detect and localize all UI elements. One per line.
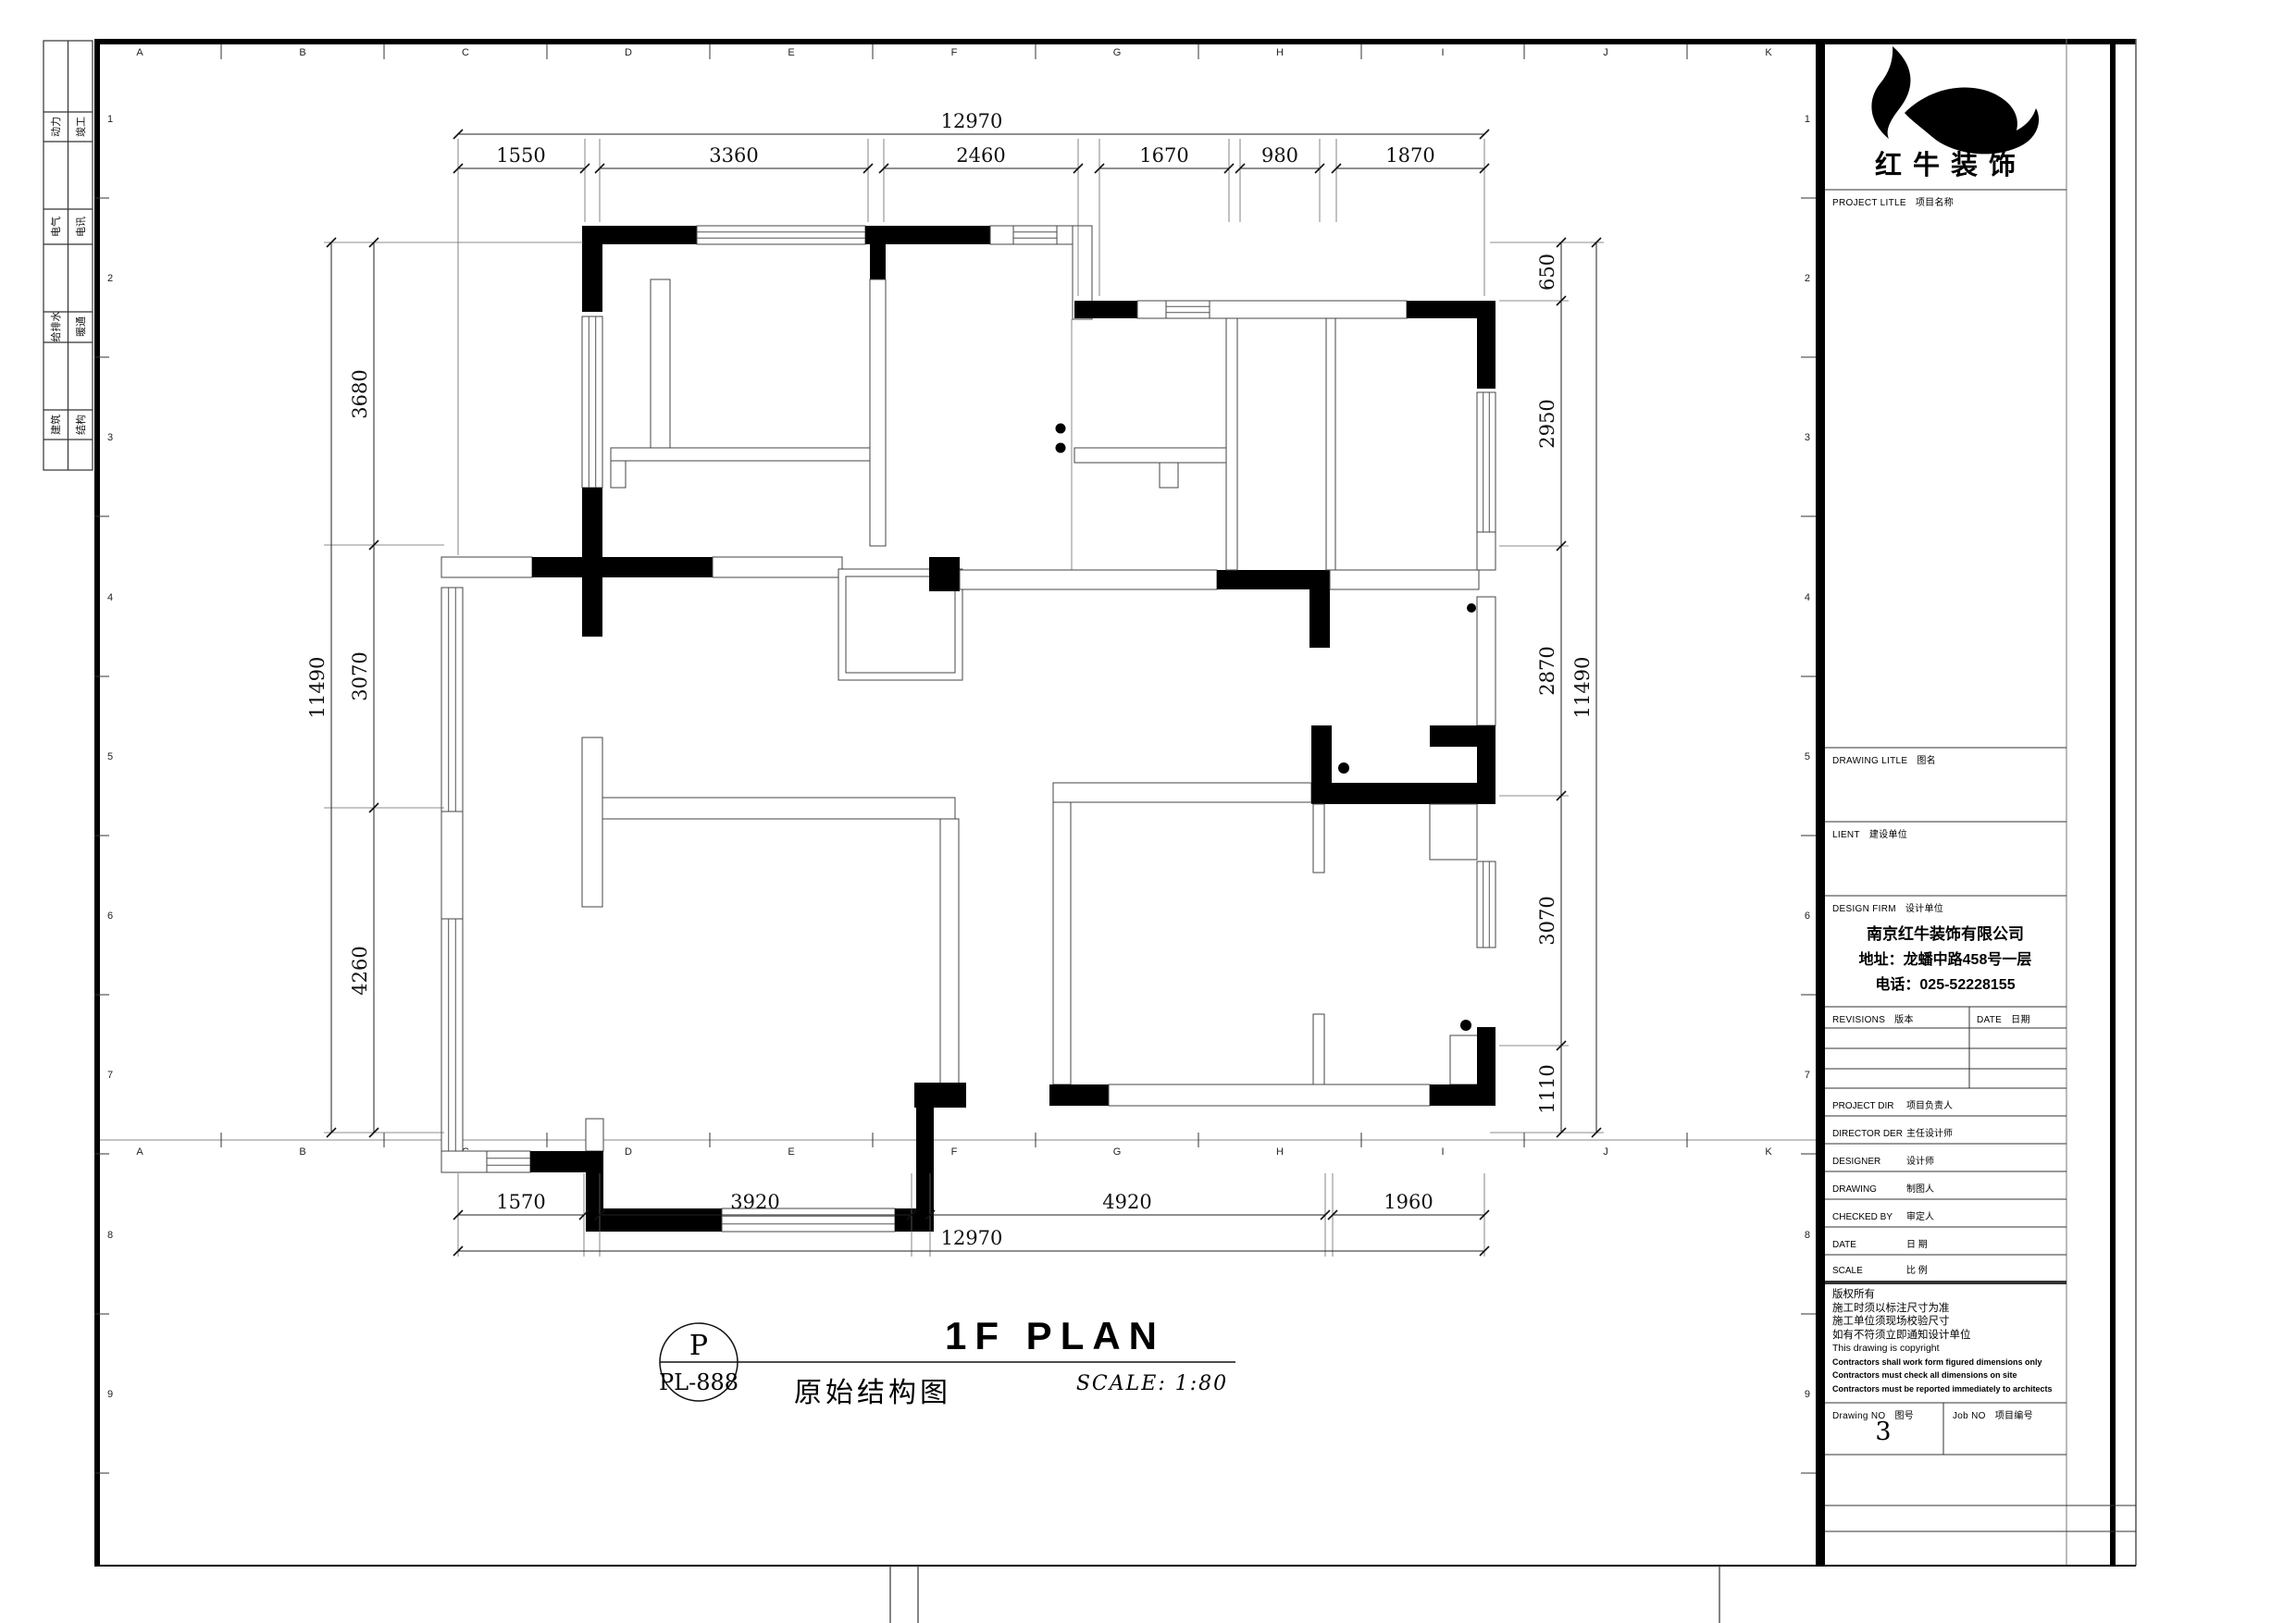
section-label-zh: 设计单位 (1905, 904, 1943, 914)
dim-label: 12970 (941, 1227, 1003, 1249)
grid-number: 9 (1805, 1389, 1810, 1400)
dim-label: 11490 (1571, 657, 1594, 719)
grid-letter: D (625, 47, 632, 58)
grid-number: 5 (107, 751, 113, 762)
role-zh: 日 期 (1906, 1240, 1928, 1250)
role-row: PROJECT DIR项目负责人 (1832, 1097, 1953, 1111)
grid-letter: K (1765, 1146, 1772, 1158)
note-line: 版权所有 (1832, 1288, 2064, 1302)
date-label-zh: 日期 (2011, 1015, 2030, 1025)
grid-letter: C (462, 47, 469, 58)
role-row: CHECKED BY审定人 (1832, 1208, 1934, 1222)
grid-letter: E (788, 1146, 794, 1158)
point-mark (1056, 424, 1066, 434)
grid-number: 6 (1805, 911, 1810, 922)
grid-number: 3 (107, 432, 113, 443)
window (441, 919, 463, 1153)
revisions-label-en: REVISIONS (1832, 1015, 1885, 1025)
role-zh: 主任设计师 (1906, 1129, 1953, 1139)
dim-label: 3070 (1536, 896, 1558, 945)
grid-letter: B (299, 47, 305, 58)
dim-label: 650 (1536, 254, 1558, 291)
grid-number: 8 (107, 1230, 113, 1241)
grid-letter: I (1441, 47, 1444, 58)
brand-logo (1871, 46, 2039, 154)
firm-address: 地址：龙蟠中路458号一层 (1859, 947, 2032, 969)
job-no-zh: 项目编号 (1995, 1411, 2033, 1421)
dim-label: 2950 (1536, 399, 1558, 448)
drawing-no-header: Drawing NO图号 (1832, 1407, 1914, 1421)
grid-number: 1 (1805, 114, 1810, 125)
grid-number: 9 (107, 1389, 113, 1400)
window (487, 1151, 530, 1172)
grid-letter: J (1603, 1146, 1608, 1158)
grid-letter: J (1603, 47, 1608, 58)
grid-number: 3 (1805, 432, 1810, 443)
dim-label: 3070 (349, 651, 371, 700)
dim-label: 3680 (349, 369, 371, 418)
grid-letter: H (1276, 47, 1284, 58)
tab-label: 竣工 (74, 117, 87, 137)
drawing-sheet: 动力 竣工 电气 电讯 给排水 暖通 建筑 结构 A B C D E F G H… (0, 0, 2296, 1623)
plan-badge-code: PL-888 (659, 1369, 738, 1395)
section-label-en: PROJECT LITLE (1832, 198, 1906, 208)
grid-number: 5 (1805, 751, 1810, 762)
note-line: 如有不符须立即通知设计单位 (1832, 1329, 2064, 1343)
copyright-notes: 版权所有 施工时须以标注尺寸为准 施工单位须现场校验尺寸 如有不符须立即通知设计… (1832, 1288, 2064, 1395)
grid-number: 2 (1805, 273, 1810, 284)
section-label-zh: 项目名称 (1916, 198, 1954, 208)
role-row: SCALE比 例 (1832, 1262, 1928, 1276)
grid-letter: H (1276, 1146, 1284, 1158)
grid-number: 6 (107, 911, 113, 922)
grid-letter: A (136, 1146, 143, 1158)
job-no-header: Job NO项目编号 (1953, 1407, 2033, 1421)
note-line: Contractors must check all dimensions on… (1832, 1369, 2064, 1382)
section-design-firm: DESIGN FIRM设计单位 (1832, 900, 1943, 914)
tab-label: 电讯 (75, 217, 87, 237)
section-label-zh: 建设单位 (1869, 830, 1907, 840)
tab-label: 电气 (49, 217, 62, 237)
grid-letter: F (951, 1146, 958, 1158)
window (582, 316, 602, 488)
dim-label: 12970 (941, 110, 1003, 132)
grid-number: 7 (107, 1070, 113, 1081)
window (697, 226, 865, 244)
note-line: 施工时须以标注尺寸为准 (1832, 1302, 2064, 1316)
dim-label: 11490 (306, 657, 329, 719)
window (1166, 301, 1210, 318)
section-label-en: DESIGN FIRM (1832, 904, 1896, 914)
revisions-label-zh: 版本 (1894, 1015, 1914, 1025)
firm-phone: 电话：025-52228155 (1875, 972, 2015, 994)
note-line: 施工单位须现场校验尺寸 (1832, 1315, 2064, 1329)
note-line: This drawing is copyright (1832, 1342, 2064, 1356)
date-header: DATE日期 (1977, 1011, 2030, 1025)
dim-label: 3360 (709, 144, 758, 167)
dim-label: 1110 (1536, 1064, 1558, 1113)
role-en: SCALE (1832, 1266, 1906, 1276)
plan-scale-note: SCALE: 1:80 (1076, 1372, 1228, 1395)
revisions-header: REVISIONS版本 (1832, 1011, 1914, 1025)
section-label-en: LIENT (1832, 830, 1860, 840)
grid-number: 1 (107, 114, 113, 125)
dim-label: 2870 (1536, 646, 1558, 695)
role-en: DATE (1832, 1240, 1906, 1250)
tab-label: 建筑 (49, 415, 62, 435)
dim-label: 980 (1261, 144, 1298, 167)
role-row: DESIGNER设计师 (1832, 1153, 1934, 1167)
firm-name: 南京红牛装饰有限公司 (1867, 921, 2024, 944)
role-en: PROJECT DIR (1832, 1101, 1906, 1111)
role-en: DRAWING (1832, 1184, 1906, 1195)
grid-letter: A (136, 47, 143, 58)
role-row: DRAWING制图人 (1832, 1181, 1934, 1195)
dim-label: 3920 (730, 1191, 779, 1213)
role-zh: 制图人 (1906, 1184, 1934, 1195)
section-label-en: DRAWING LITLE (1832, 756, 1907, 766)
window (441, 588, 463, 811)
grid-number: 4 (1805, 592, 1810, 603)
role-zh: 项目负责人 (1906, 1101, 1953, 1111)
job-no-en: Job NO (1953, 1411, 1986, 1421)
grid-number: 7 (1805, 1070, 1810, 1081)
side-tab-strip: 动力 竣工 电气 电讯 给排水 暖通 建筑 结构 (43, 41, 93, 470)
grid-letter: D (625, 1146, 632, 1158)
role-row: DATE日 期 (1832, 1236, 1928, 1250)
grid-letter: G (1113, 47, 1122, 58)
tab-label: 结构 (74, 415, 87, 435)
grid-letter: F (951, 47, 958, 58)
grid-number: 4 (107, 592, 113, 603)
drawing-no-zh: 图号 (1894, 1411, 1914, 1421)
role-zh: 设计师 (1906, 1157, 1934, 1167)
dim-label: 1570 (496, 1191, 545, 1213)
dim-label: 2460 (956, 144, 1005, 167)
dim-label: 4260 (349, 946, 371, 995)
grid-number: 8 (1805, 1230, 1810, 1241)
grid-letter: B (299, 1146, 305, 1158)
tab-label: 给排水 (49, 312, 62, 342)
floor-plan (441, 226, 1496, 1232)
tab-label: 暖通 (75, 316, 87, 337)
window (1013, 226, 1057, 244)
role-en: CHECKED BY (1832, 1212, 1906, 1222)
role-zh: 审定人 (1906, 1212, 1934, 1222)
window (1477, 392, 1496, 532)
grid-number: 2 (107, 273, 113, 284)
point-mark (1056, 443, 1066, 453)
grid-letter: K (1765, 47, 1772, 58)
section-client: LIENT建设单位 (1832, 826, 1907, 840)
note-line: Contractors must be reported immediately… (1832, 1382, 2064, 1396)
point-mark (1338, 762, 1349, 774)
date-label-en: DATE (1977, 1015, 2002, 1025)
plan-subheading: 原始结构图 (794, 1369, 951, 1410)
dim-label: 1550 (496, 144, 545, 167)
point-mark (1460, 1020, 1471, 1031)
plan-badge-letter: P (689, 1330, 708, 1362)
role-en: DESIGNER (1832, 1157, 1906, 1167)
window (1477, 861, 1496, 948)
role-row: DIRECTOR DER主任设计师 (1832, 1125, 1953, 1139)
grid-letter: I (1441, 1146, 1444, 1158)
dim-label: 1670 (1139, 144, 1188, 167)
section-label-zh: 图名 (1917, 756, 1936, 766)
grid-letter: G (1113, 1146, 1122, 1158)
grid-letter: E (788, 47, 794, 58)
dim-label: 1870 (1385, 144, 1434, 167)
brand-name: 红牛装饰 (1875, 143, 2027, 182)
dim-label: 1960 (1384, 1191, 1433, 1213)
role-en: DIRECTOR DER (1832, 1129, 1906, 1139)
section-drawing-title: DRAWING LITLE图名 (1832, 752, 1936, 766)
drawing-no-value: 3 (1875, 1418, 1891, 1446)
role-zh: 比 例 (1906, 1266, 1928, 1276)
note-line: Contractors shall work form figured dime… (1832, 1356, 2064, 1369)
plan-heading: 1F PLAN (945, 1314, 1165, 1358)
point-mark (1467, 603, 1476, 613)
dim-label: 4920 (1102, 1191, 1151, 1213)
tab-label: 动力 (50, 117, 62, 137)
section-project-title: PROJECT LITLE项目名称 (1832, 194, 1954, 208)
